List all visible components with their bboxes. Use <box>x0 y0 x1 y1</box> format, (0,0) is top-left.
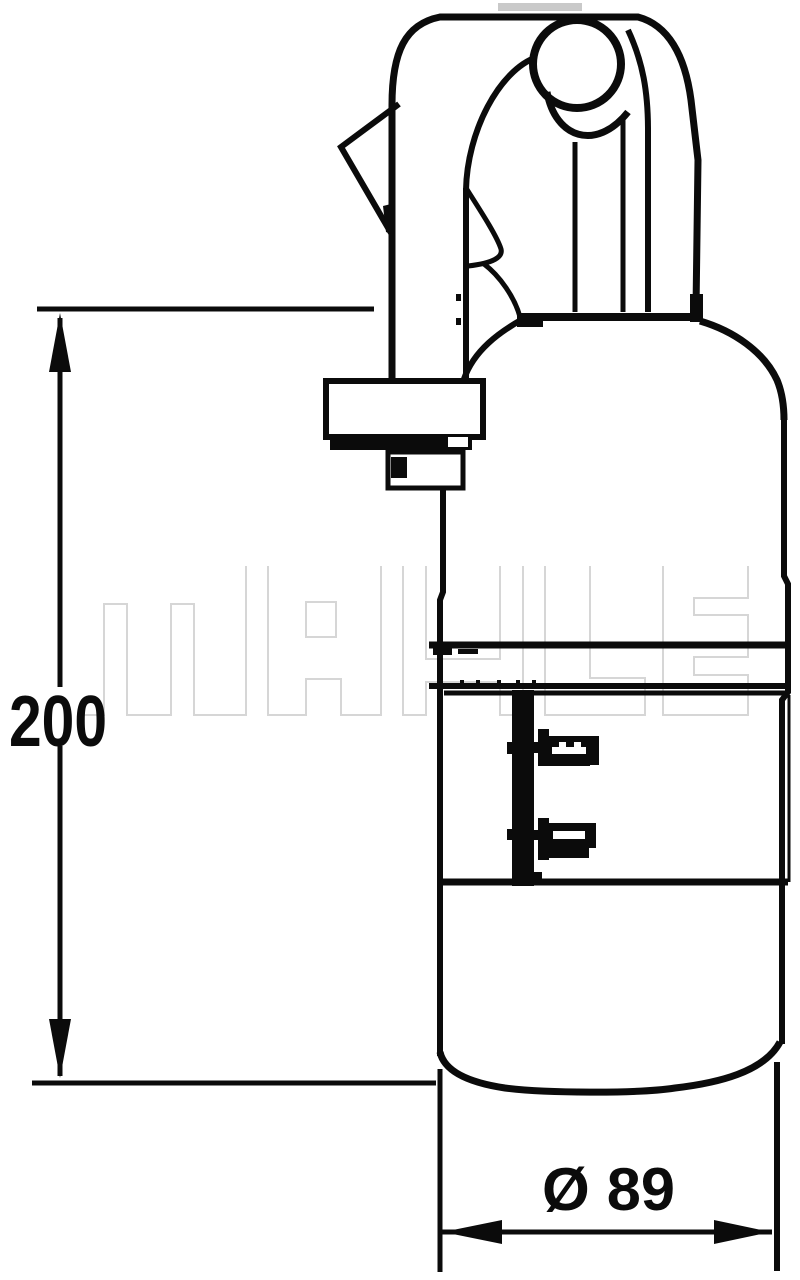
svg-text:Ø 89: Ø 89 <box>542 1156 675 1223</box>
svg-text:200: 200 <box>9 682 107 762</box>
